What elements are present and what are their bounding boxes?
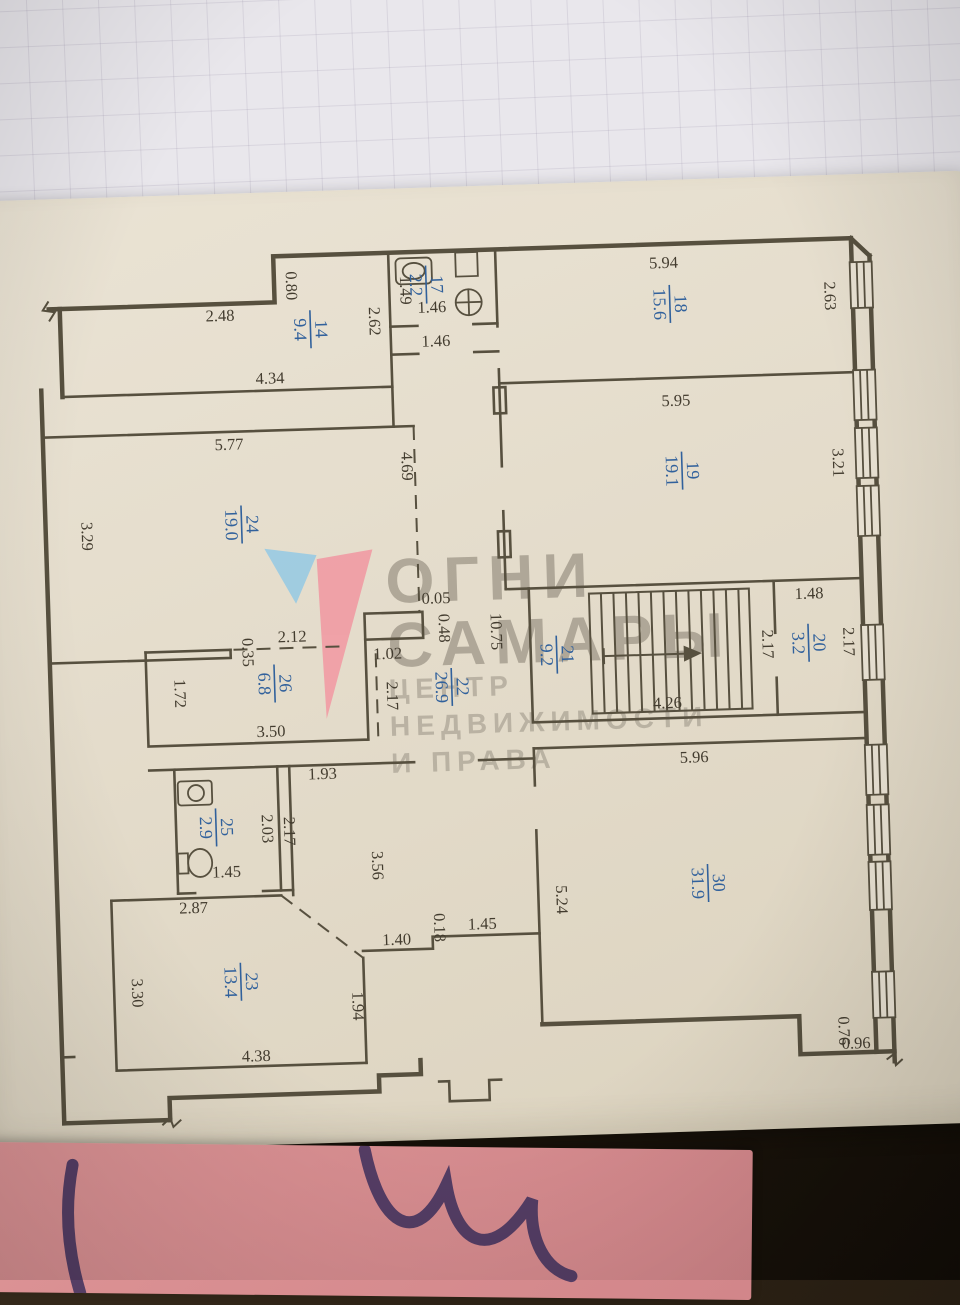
dimension-label: 1.93 <box>308 764 337 784</box>
watermark-tagline-line3: И ПРАВА <box>391 743 557 779</box>
window-icon <box>868 861 891 910</box>
room-area: 6.8 <box>254 672 275 695</box>
room-area: 2.2 <box>406 273 427 296</box>
window-icon <box>865 744 889 795</box>
dimension-label: 2.17 <box>383 681 403 710</box>
dimension-label: 3.56 <box>368 851 388 880</box>
room-label-26: 266.8 <box>254 664 296 703</box>
dimension-label: 2.03 <box>258 814 278 843</box>
dimension-label: 0.48 <box>434 613 454 642</box>
dimension-label: 1.40 <box>382 929 411 949</box>
room-number: 26 <box>275 674 296 693</box>
room-area: 3.2 <box>788 631 809 654</box>
dimension-label: 1.72 <box>170 679 190 708</box>
dimension-label: 2.48 <box>205 306 234 326</box>
toilet-icon <box>178 849 213 878</box>
pink-sticky-note <box>0 1142 753 1300</box>
room-label-20: 203.2 <box>788 623 830 662</box>
room-area: 19.1 <box>662 455 683 487</box>
dimension-label: 0.05 <box>421 588 450 608</box>
dimension-label: 3.50 <box>256 721 285 741</box>
room-number: 24 <box>242 515 263 534</box>
window-icon <box>867 804 891 855</box>
room-area: 9.4 <box>290 318 311 341</box>
room-area: 31.9 <box>688 867 709 899</box>
room-number: 19 <box>683 461 704 480</box>
room-number: 30 <box>709 873 730 892</box>
dimension-label: 4.34 <box>255 368 284 388</box>
dimension-label: 3.21 <box>828 448 848 477</box>
dimension-label: 3.30 <box>128 978 148 1007</box>
room-number: 22 <box>452 677 473 696</box>
pen-scribble <box>0 1142 753 1300</box>
dimension-label: 5.95 <box>661 390 690 410</box>
dimension-label: 2.63 <box>820 281 840 310</box>
dimension-label: 1.45 <box>467 914 496 934</box>
dimension-label: 4.69 <box>397 452 417 481</box>
room-label-25: 252.9 <box>195 808 237 847</box>
dimension-label: 5.24 <box>552 885 572 914</box>
room-number: 21 <box>558 645 579 664</box>
room-area: 19.0 <box>221 509 242 541</box>
room-number: 14 <box>311 320 332 339</box>
dimension-label: 5.94 <box>649 253 678 273</box>
room-label-24: 2419.0 <box>221 505 263 544</box>
dimension-label: 2.87 <box>179 898 208 918</box>
window-icon <box>872 971 895 1018</box>
washing-machine-icon <box>455 252 478 277</box>
dimension-label: 10.75 <box>486 613 506 651</box>
room-label-14: 149.4 <box>290 310 332 349</box>
dimension-label: 1.48 <box>794 583 823 603</box>
window-icon <box>857 485 881 536</box>
washbasin-icon <box>178 781 213 806</box>
dimension-label: 1.02 <box>373 644 402 664</box>
dimension-label: 1.94 <box>348 991 368 1020</box>
dimension-label: 4.38 <box>242 1046 271 1066</box>
dimension-label: 0.96 <box>841 1033 870 1053</box>
room-number: 18 <box>671 294 692 313</box>
window-icon <box>853 370 877 421</box>
dimension-label: 2.12 <box>277 627 306 647</box>
dimension-label: 2.17 <box>280 816 300 845</box>
dimension-label: 1.46 <box>421 331 450 351</box>
window-icon <box>861 624 885 680</box>
room-area: 2.9 <box>196 816 217 839</box>
dimension-label: 5.77 <box>214 434 243 454</box>
room-area: 15.6 <box>649 288 670 320</box>
floor-plan-sheet: ОГНИ САМАРЫ ЦЕНТР НЕДВИЖИМОСТИ И ПРАВА <box>0 170 960 1153</box>
dimension-label: 2.17 <box>758 629 778 658</box>
room-label-19: 1919.1 <box>662 451 704 490</box>
room-area: 26.9 <box>431 671 452 703</box>
dimension-label: 5.96 <box>679 747 708 767</box>
room-area: 13.4 <box>220 966 241 998</box>
dimension-label: 0.80 <box>282 271 302 300</box>
room-area: 9.2 <box>536 643 557 666</box>
floor-plan-drawing: ОГНИ САМАРЫ ЦЕНТР НЕДВИЖИМОСТИ И ПРАВА <box>22 199 931 1156</box>
window-icon <box>855 427 879 478</box>
room-label-18: 1815.6 <box>649 284 691 323</box>
dimension-label: 2.62 <box>365 306 385 335</box>
dimension-label: 1.45 <box>212 862 241 882</box>
room-label-23: 2313.4 <box>220 962 262 1001</box>
window-icon <box>850 262 873 309</box>
round-fixture-icon <box>455 289 482 316</box>
room-label-30: 3031.9 <box>687 863 729 902</box>
room-number: 17 <box>427 275 448 294</box>
photo-of-floor-plan: { "plan": { "title_hint": "apartment flo… <box>0 0 960 1280</box>
stair-riser-line <box>738 589 742 709</box>
dimension-label: 0.18 <box>430 913 450 942</box>
room-number: 25 <box>217 818 238 837</box>
room-number: 20 <box>809 633 830 652</box>
dimension-label: 1.46 <box>417 297 446 317</box>
dimension-label: 2.17 <box>839 627 859 656</box>
dimension-label: 3.29 <box>77 522 97 551</box>
dimension-label: 4.26 <box>653 693 682 713</box>
room-number: 23 <box>242 972 263 991</box>
dimension-label: 0.35 <box>238 638 258 667</box>
